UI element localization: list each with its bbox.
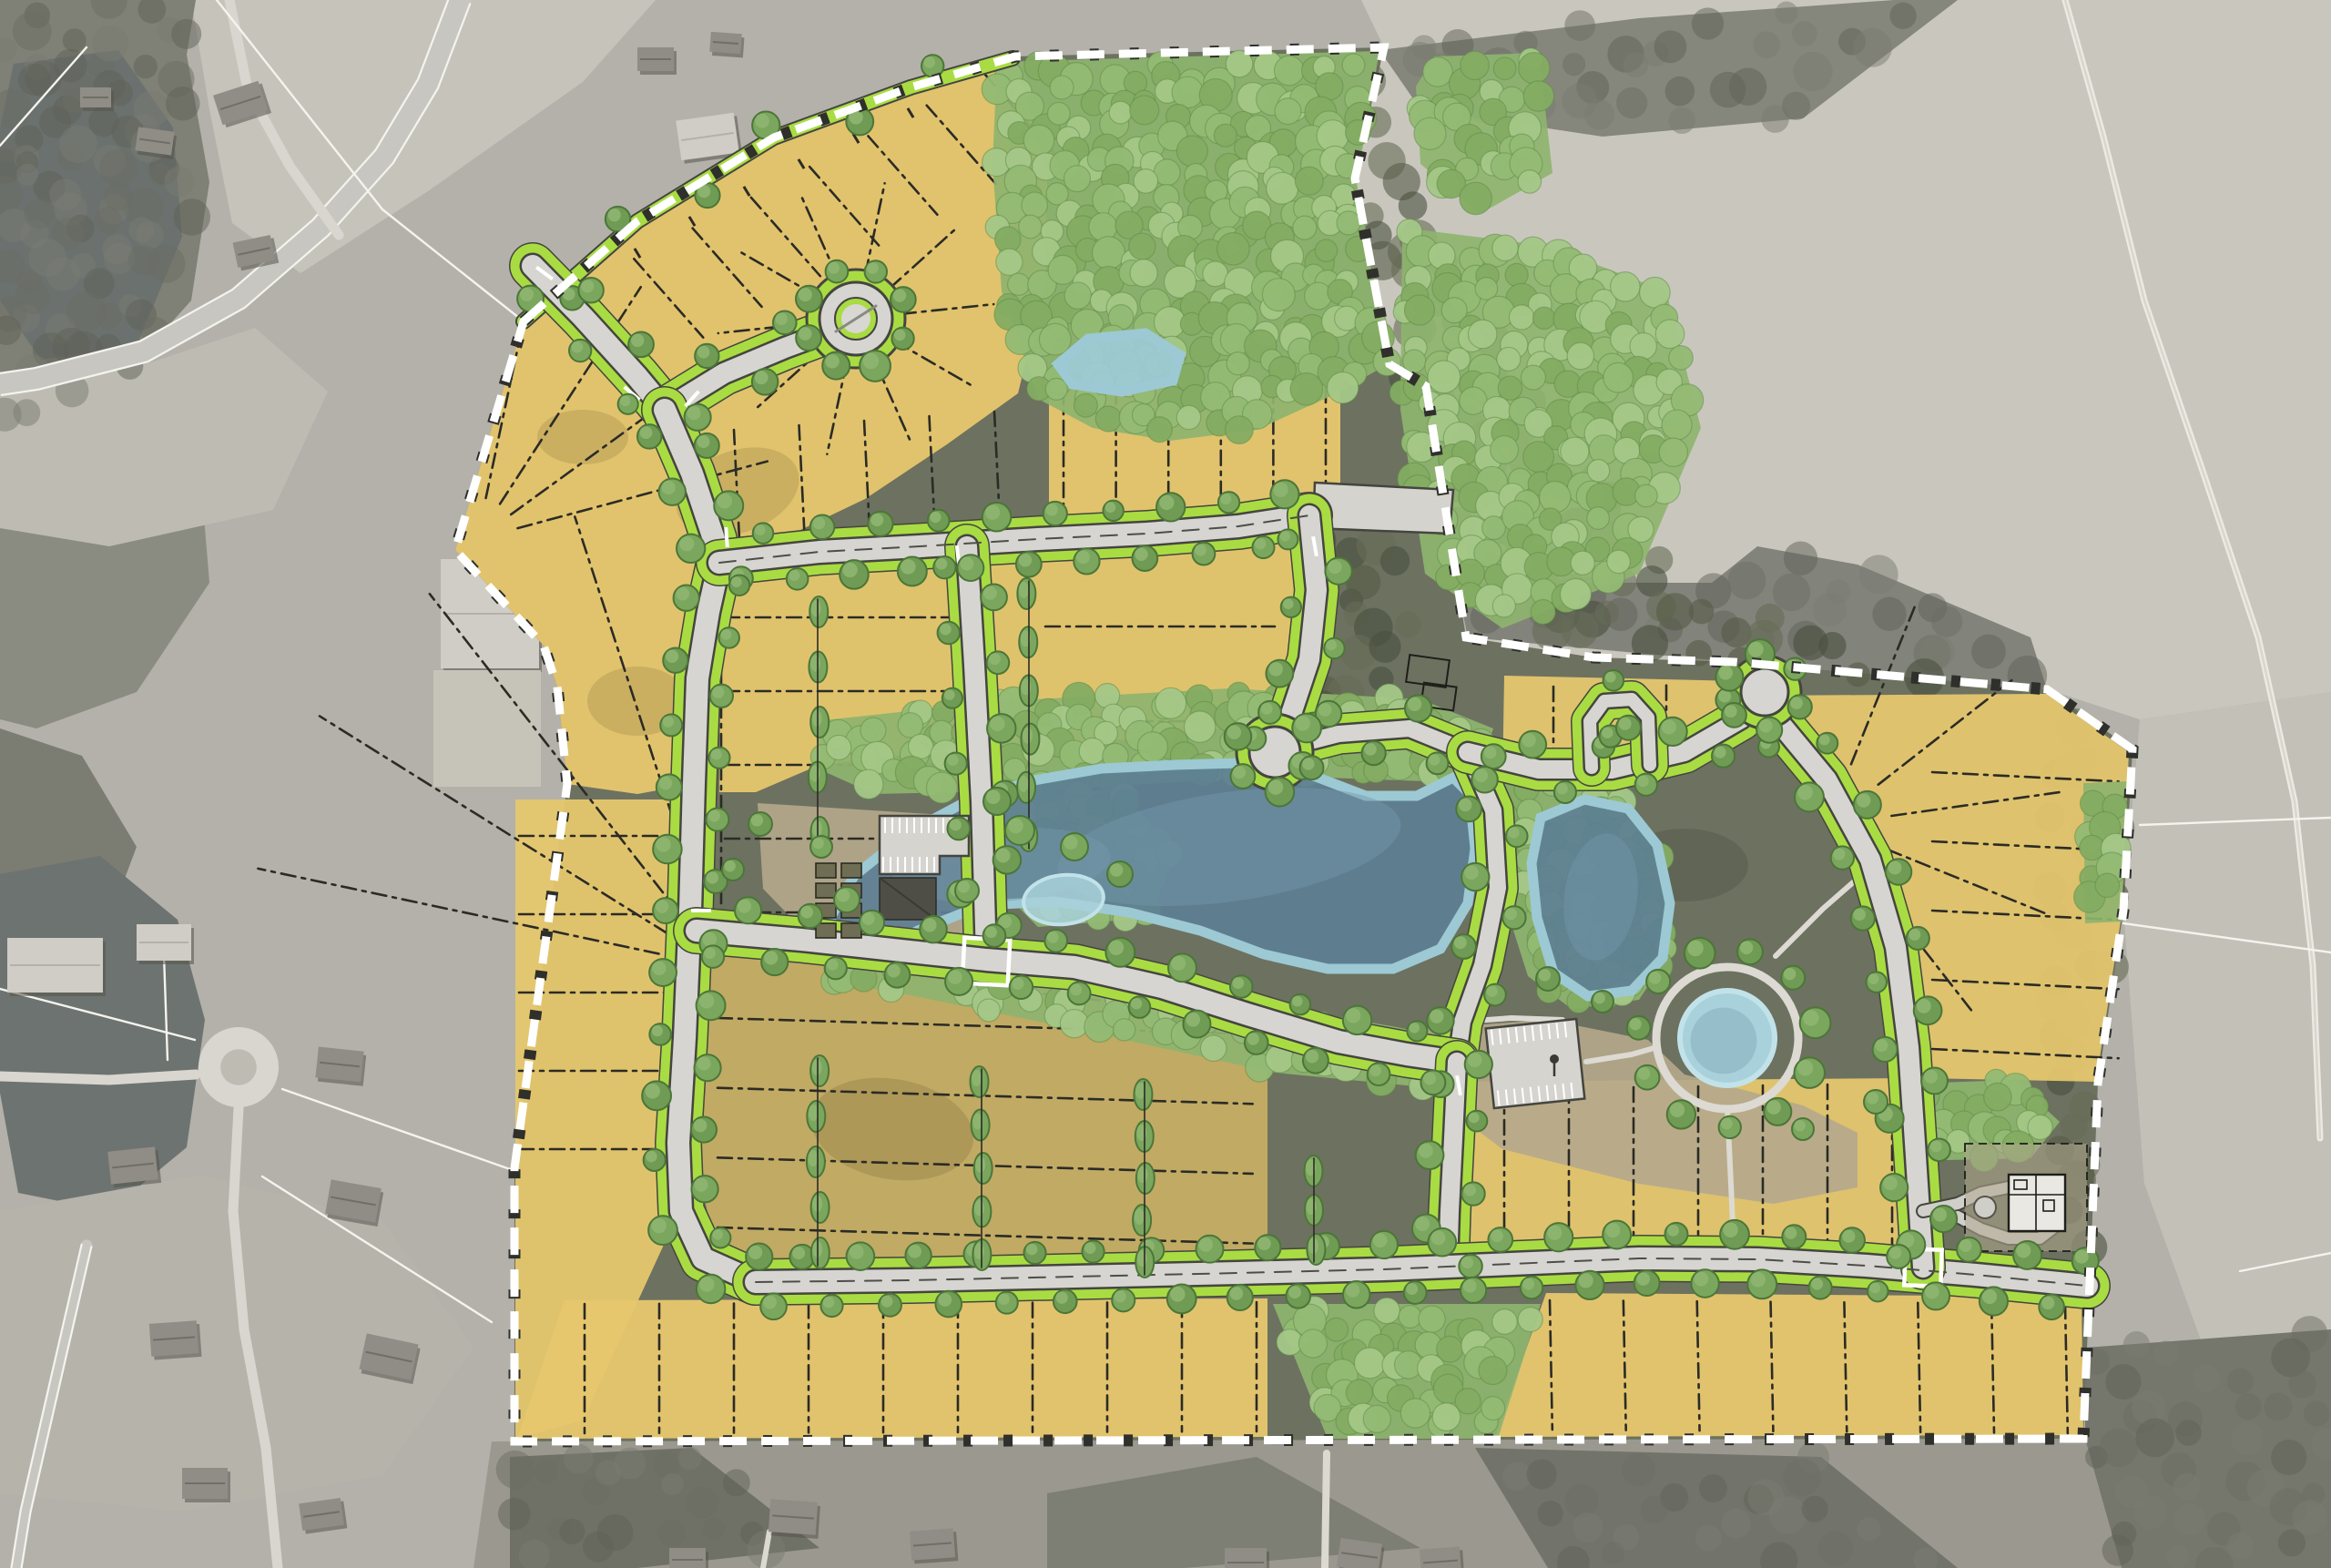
- forest-canopy: [996, 249, 1023, 275]
- street-tree-highlight: [938, 1293, 952, 1307]
- street-tree-highlight: [1636, 1272, 1650, 1286]
- aerial-tree-texture: [2278, 1529, 2306, 1556]
- aerial-tree-texture: [128, 245, 159, 276]
- forest-canopy: [1064, 166, 1091, 192]
- forest-canopy: [1531, 600, 1555, 625]
- forest-canopy: [1432, 1403, 1461, 1431]
- street-tree-highlight: [986, 789, 1001, 804]
- aerial-tree-texture: [1654, 30, 1686, 63]
- street-tree-highlight: [1064, 835, 1078, 850]
- aerial-tree-texture: [165, 167, 195, 197]
- street-tree-highlight: [1261, 703, 1273, 715]
- forest-canopy: [977, 999, 1000, 1022]
- street-tree-highlight: [645, 1084, 660, 1099]
- street-tree-highlight: [1159, 495, 1174, 510]
- street-tree-highlight: [792, 1247, 805, 1259]
- street-tree-highlight: [694, 1119, 707, 1133]
- street-tree-highlight: [1410, 1023, 1420, 1033]
- forest-canopy: [1079, 738, 1105, 765]
- street-tree-highlight: [699, 993, 715, 1009]
- woods-texture: [1689, 599, 1715, 625]
- street-tree-highlight: [763, 1296, 777, 1309]
- street-tree-highlight: [1186, 1013, 1200, 1027]
- lot-line-tree-highlight: [1306, 1198, 1316, 1215]
- forest-canopy: [1227, 352, 1249, 375]
- street-tree-highlight: [1268, 662, 1282, 676]
- forest-canopy: [1419, 1306, 1445, 1332]
- aerial-tree-texture: [2173, 1503, 2205, 1535]
- street-tree-highlight: [1459, 799, 1471, 811]
- forest-canopy: [1587, 507, 1609, 529]
- lot-line-tree-highlight: [1019, 776, 1029, 792]
- aerial-tree-texture: [2227, 1369, 2254, 1395]
- street-tree-highlight: [1667, 1225, 1679, 1237]
- street-tree-highlight: [1766, 1100, 1781, 1115]
- street-tree-highlight: [1933, 1207, 1947, 1221]
- street-tree-highlight: [1227, 725, 1241, 738]
- street-tree-highlight: [1084, 1242, 1096, 1254]
- street-tree-highlight: [1868, 973, 1879, 984]
- forest-canopy: [1567, 342, 1593, 369]
- forest-canopy: [1669, 346, 1694, 371]
- street-tree-highlight: [950, 819, 962, 830]
- aerial-tree-texture: [13, 399, 40, 426]
- forest-canopy: [1045, 378, 1067, 400]
- forest-canopy: [1217, 232, 1250, 265]
- aerial-tree-texture: [96, 303, 122, 330]
- street-tree-highlight: [1484, 746, 1497, 759]
- aerial-house: [7, 938, 106, 996]
- street-tree-highlight: [1637, 1067, 1650, 1080]
- aerial-tree-texture: [15, 280, 49, 314]
- street-tree-highlight: [1431, 1230, 1446, 1245]
- aerial-tree-texture: [1792, 21, 1817, 46]
- street-tree-highlight: [702, 932, 717, 947]
- aerial-tree-texture: [13, 12, 52, 51]
- street-tree-highlight: [1369, 1064, 1381, 1076]
- street-tree-highlight: [646, 1151, 657, 1163]
- aerial-tree-texture: [1784, 1458, 1822, 1496]
- street-tree-highlight: [1883, 1176, 1898, 1190]
- street-tree-highlight: [608, 209, 621, 221]
- garden-plot: [841, 923, 861, 938]
- aerial-tree-texture: [2271, 1440, 2306, 1475]
- forest-canopy: [1561, 437, 1589, 465]
- street-tree-highlight: [990, 717, 1004, 731]
- aerial-tree-texture: [1889, 3, 1916, 29]
- forest-canopy: [1505, 263, 1528, 286]
- street-tree-highlight: [1468, 1053, 1482, 1067]
- street-tree-highlight: [1306, 1050, 1319, 1064]
- forest-canopy: [1262, 279, 1295, 311]
- forest-canopy: [1064, 282, 1091, 309]
- forest-canopy: [1050, 76, 1074, 99]
- aerial-tree-texture: [2135, 1419, 2174, 1458]
- street-tree-highlight: [1486, 985, 1497, 996]
- parking-pond: [1486, 1019, 1585, 1108]
- house-roof: [1225, 1548, 1267, 1568]
- forest-canopy: [1984, 1083, 2011, 1110]
- street-tree-highlight: [960, 557, 973, 571]
- street-tree-highlight: [1199, 1237, 1214, 1252]
- aerial-house: [910, 1528, 958, 1563]
- street-tree-highlight: [697, 1056, 710, 1070]
- street-tree-highlight: [1026, 1244, 1038, 1256]
- street-tree-highlight: [1785, 1227, 1797, 1239]
- street-tree-highlight: [947, 754, 959, 766]
- street-tree-highlight: [823, 1297, 835, 1308]
- street-tree-highlight: [708, 810, 720, 822]
- street-tree-highlight: [1875, 1039, 1888, 1052]
- street-tree-highlight: [731, 576, 742, 587]
- street-tree-highlight: [1233, 766, 1246, 779]
- forest-canopy: [1655, 320, 1685, 349]
- forest-canopy: [1607, 550, 1630, 573]
- street-tree-highlight: [1721, 1118, 1733, 1130]
- forest-canopy: [1423, 57, 1452, 87]
- street-tree-highlight: [1268, 779, 1283, 794]
- street-tree-highlight: [1578, 1273, 1593, 1288]
- street-tree-highlight: [1619, 718, 1632, 730]
- aerial-tree-texture: [723, 1469, 750, 1496]
- woods-texture: [1380, 546, 1410, 575]
- forest-canopy: [1492, 595, 1515, 617]
- forest-canopy: [926, 772, 957, 803]
- street-tree-highlight: [1110, 863, 1124, 877]
- aerial-tree-texture: [171, 19, 201, 49]
- forest-canopy: [1523, 442, 1554, 473]
- lot-line-tree-highlight: [810, 656, 820, 672]
- aerial-tree-texture: [49, 178, 81, 210]
- forest-canopy: [1354, 1348, 1385, 1379]
- street-tree-highlight: [1288, 1286, 1301, 1298]
- street-tree-highlight: [1220, 494, 1231, 504]
- forest-canopy: [1662, 410, 1692, 440]
- aerial-tree-texture: [2175, 1420, 2202, 1446]
- lot-line-tree-highlight: [1137, 1166, 1147, 1183]
- forest-canopy: [1479, 1357, 1507, 1385]
- street-tree-highlight: [1430, 1009, 1443, 1023]
- forest-canopy: [1176, 405, 1200, 429]
- aerial-tree-texture: [1784, 542, 1817, 575]
- lot-line-tree-highlight: [811, 600, 821, 616]
- street-tree-highlight: [1045, 504, 1058, 516]
- forest-canopy: [1374, 1298, 1400, 1323]
- forest-canopy: [1523, 81, 1553, 111]
- aerial-tree-texture: [2173, 1473, 2201, 1501]
- street-tree-highlight: [1930, 1140, 1942, 1152]
- forest-canopy: [1155, 687, 1186, 718]
- street-tree-highlight: [1008, 819, 1023, 834]
- street-tree-highlight: [1257, 1237, 1271, 1250]
- amenity-building: [2009, 1175, 2065, 1231]
- aerial-tree-texture: [2193, 1364, 2221, 1392]
- forest-canopy: [1293, 216, 1317, 239]
- street-tree-highlight: [1889, 1247, 1901, 1258]
- forest-canopy: [1587, 460, 1609, 482]
- gravel-pad-rect: [433, 670, 541, 787]
- aerial-tree-texture: [1753, 31, 1780, 58]
- street-tree-highlight: [1373, 1233, 1388, 1247]
- aerial-tree-texture: [2264, 1392, 2292, 1420]
- street-tree-highlight: [989, 653, 1001, 665]
- aerial-tree-texture: [1859, 555, 1898, 594]
- street-tree-highlight: [1464, 1184, 1476, 1196]
- street-tree-highlight: [936, 558, 948, 570]
- forest-canopy: [1635, 484, 1658, 507]
- aerial-tree-texture: [564, 1444, 594, 1474]
- forest-canopy: [1491, 436, 1519, 464]
- aerial-tree-texture: [46, 258, 80, 291]
- street-tree-highlight: [1522, 1278, 1534, 1290]
- forest-canopy: [1295, 167, 1323, 195]
- forest-canopy: [827, 735, 851, 759]
- street-tree-highlight: [1797, 1060, 1813, 1075]
- forest-canopy: [1074, 393, 1098, 417]
- aerial-tree-texture: [2153, 1341, 2178, 1366]
- street-tree-highlight: [1505, 908, 1517, 920]
- forest-canopy: [1363, 1405, 1390, 1432]
- garden-plot: [841, 863, 861, 878]
- forest-canopy: [1492, 235, 1518, 260]
- street-tree-highlight: [1076, 550, 1090, 564]
- street-tree-highlight: [1715, 747, 1726, 759]
- forest-canopy: [909, 734, 933, 759]
- woods-texture: [1818, 632, 1846, 659]
- street-tree-highlight: [1522, 733, 1535, 747]
- street-tree-highlight: [1318, 703, 1332, 717]
- house-roof: [669, 1548, 706, 1568]
- street-tree-highlight: [1295, 716, 1309, 730]
- forest-canopy: [1039, 323, 1071, 355]
- street-tree-highlight: [1740, 942, 1753, 954]
- street-tree-highlight: [748, 1246, 762, 1259]
- forest-canopy: [1493, 57, 1516, 80]
- street-tree-highlight: [1556, 783, 1568, 795]
- lot-line-tree-highlight: [972, 1070, 982, 1086]
- aerial-tree-texture: [2227, 1532, 2254, 1559]
- street-tree-highlight: [1230, 1287, 1244, 1300]
- forest-canopy: [1518, 170, 1541, 193]
- aerial-tree-texture: [678, 1447, 702, 1471]
- forest-canopy: [1274, 56, 1304, 86]
- street-tree-highlight: [1718, 666, 1733, 680]
- lot-line-tree-highlight: [1135, 1208, 1145, 1225]
- aerial-tree-texture: [1641, 1496, 1668, 1523]
- street-tree-highlight: [1662, 719, 1676, 734]
- street-tree-highlight: [1346, 1283, 1359, 1297]
- street-tree-highlight: [1415, 1217, 1430, 1231]
- street-tree-highlight: [1408, 697, 1421, 711]
- stop-bar: [726, 527, 728, 547]
- street-tree-highlight: [581, 280, 594, 292]
- woods-texture: [1595, 601, 1619, 625]
- street-tree-highlight: [755, 371, 769, 384]
- street-tree-highlight: [1171, 956, 1186, 971]
- street-tree-highlight: [751, 814, 764, 827]
- street-tree-highlight: [1629, 1018, 1641, 1030]
- street-tree-highlight: [1784, 968, 1796, 980]
- street-tree-highlight: [996, 849, 1011, 863]
- street-tree-highlight: [1255, 538, 1267, 550]
- garden-plot: [816, 883, 836, 898]
- aerial-tree-texture: [1857, 1517, 1880, 1541]
- aerial-house: [182, 1468, 230, 1502]
- forest-canopy: [1414, 117, 1446, 149]
- forest-canopy: [1550, 274, 1580, 304]
- street-tree-highlight: [1105, 502, 1116, 513]
- forest-canopy: [1298, 1329, 1327, 1358]
- aerial-house: [315, 1046, 367, 1085]
- aerial-tree-texture: [1584, 99, 1614, 129]
- forest-canopy: [1403, 350, 1426, 372]
- forest-canopy: [1498, 376, 1522, 400]
- aerial-tree-texture: [92, 25, 128, 62]
- street-tree-highlight: [711, 749, 722, 760]
- forest-canopy: [1533, 307, 1555, 329]
- street-tree-highlight: [985, 505, 1000, 520]
- lot-line-tree-highlight: [808, 1150, 818, 1166]
- aerial-tree-texture: [661, 1473, 683, 1495]
- street-tree-highlight: [1924, 1070, 1938, 1084]
- forest-canopy: [1630, 332, 1656, 359]
- street-tree-highlight: [1725, 705, 1737, 718]
- street-tree-highlight: [922, 918, 936, 932]
- forest-canopy: [1226, 416, 1254, 444]
- street-tree-highlight: [1109, 940, 1125, 955]
- street-tree-highlight: [1464, 865, 1479, 880]
- street-tree-highlight: [812, 838, 823, 849]
- aerial-tree-texture: [496, 1451, 534, 1489]
- forest-canopy: [1275, 98, 1301, 125]
- lot-line-tree-highlight: [812, 1059, 822, 1075]
- street-tree-highlight: [1593, 993, 1604, 1003]
- street-tree-highlight: [1748, 642, 1764, 657]
- aerial-tree-texture: [686, 1487, 718, 1519]
- aerial-tree-texture: [1813, 593, 1847, 626]
- forest-canopy: [1519, 53, 1550, 84]
- aerial-tree-texture: [1538, 1501, 1563, 1526]
- forest-canopy: [1114, 1019, 1135, 1041]
- street-tree-highlight: [755, 114, 769, 128]
- aerial-tree-texture: [1616, 87, 1647, 118]
- forest-canopy: [854, 769, 883, 799]
- aerial-tree-texture: [99, 149, 137, 187]
- street-tree-highlight: [738, 900, 751, 913]
- street-tree-highlight: [1819, 735, 1830, 746]
- street-tree-highlight: [1055, 1291, 1067, 1303]
- street-tree-highlight: [1346, 1008, 1360, 1023]
- street-tree-highlight: [881, 1296, 893, 1308]
- street-tree-highlight: [998, 1294, 1010, 1306]
- gravel-pad: [433, 670, 541, 787]
- street-tree-highlight: [651, 1218, 667, 1234]
- street-tree-highlight: [842, 563, 857, 577]
- aerial-tree-texture: [128, 217, 154, 242]
- street-tree-highlight: [520, 288, 534, 301]
- street-tree-highlight: [1273, 483, 1288, 497]
- aerial-tree-texture: [1872, 597, 1906, 631]
- street-tree-highlight: [1539, 969, 1552, 982]
- street-tree-highlight: [1508, 827, 1519, 838]
- forest-canopy: [1130, 260, 1157, 287]
- street-tree-highlight: [679, 536, 694, 551]
- street-tree-highlight: [1637, 776, 1649, 788]
- street-tree-highlight: [1909, 929, 1920, 941]
- street-tree-highlight: [776, 313, 788, 325]
- woods-texture: [1656, 593, 1694, 630]
- aerial-tree-texture: [534, 1460, 558, 1483]
- street-tree-highlight: [1292, 996, 1303, 1007]
- street-tree-highlight: [799, 288, 812, 301]
- street-tree-highlight: [944, 689, 955, 700]
- street-tree-highlight: [1170, 1287, 1186, 1302]
- street-tree-highlight: [1853, 908, 1866, 921]
- forest-canopy: [1404, 295, 1434, 325]
- aerial-tree-texture: [583, 1532, 614, 1563]
- street-tree-highlight: [571, 341, 583, 353]
- forest-canopy: [1290, 373, 1322, 405]
- aerial-tree-texture: [1793, 52, 1832, 91]
- aerial-tree-texture: [166, 87, 199, 120]
- aerial-tree-texture: [1769, 1496, 1807, 1533]
- street-tree-highlight: [1131, 998, 1142, 1009]
- forest-canopy: [1047, 102, 1070, 125]
- street-tree-highlight: [1982, 1289, 1997, 1304]
- aerial-tree-texture: [2123, 1331, 2150, 1358]
- aerial-tree-texture: [2133, 1495, 2167, 1529]
- aerial-house: [299, 1498, 347, 1534]
- street-tree-highlight: [666, 650, 678, 663]
- street-tree-highlight: [1867, 1092, 1879, 1105]
- street-tree-highlight: [656, 900, 668, 912]
- forest-canopy: [860, 718, 886, 743]
- aerial-tree-texture: [2235, 1393, 2262, 1420]
- aerial-tree-texture: [2231, 1422, 2264, 1455]
- forest-canopy: [1337, 211, 1360, 235]
- aerial-tree-texture: [1853, 28, 1892, 67]
- aerial-tree-texture: [2165, 1545, 2189, 1568]
- street-tree-highlight: [1790, 697, 1803, 709]
- forest-canopy: [1184, 711, 1215, 742]
- street-tree-highlight: [862, 912, 875, 925]
- street-tree-highlight: [1474, 769, 1488, 782]
- aerial-tree-texture: [658, 1520, 686, 1547]
- forest-canopy: [1200, 1035, 1226, 1061]
- street-bl-west: [0, 1074, 196, 1080]
- woods-texture: [1399, 191, 1428, 220]
- street-tree-highlight: [1917, 999, 1931, 1013]
- street-tree-highlight: [1419, 1144, 1433, 1158]
- forest-canopy: [1428, 361, 1461, 393]
- forest-canopy: [1560, 579, 1591, 610]
- street-tree-highlight: [707, 871, 718, 883]
- aerial-tree-texture: [703, 1518, 726, 1541]
- street-tree-highlight: [640, 426, 653, 439]
- forest-canopy: [1176, 136, 1207, 167]
- forest-canopy: [1172, 76, 1203, 107]
- lot-line-tree-highlight: [1137, 1250, 1147, 1267]
- forest-canopy: [1492, 1309, 1517, 1334]
- street-tree-highlight: [948, 970, 962, 984]
- woods-texture: [2061, 1113, 2088, 1140]
- forest-canopy: [1518, 1307, 1542, 1331]
- street-tree-highlight: [1469, 1113, 1480, 1124]
- aerial-tree-texture: [595, 1460, 621, 1485]
- street-tree-highlight: [1759, 719, 1773, 733]
- aerial-tree-texture: [1669, 107, 1695, 134]
- forest-canopy: [1342, 54, 1365, 76]
